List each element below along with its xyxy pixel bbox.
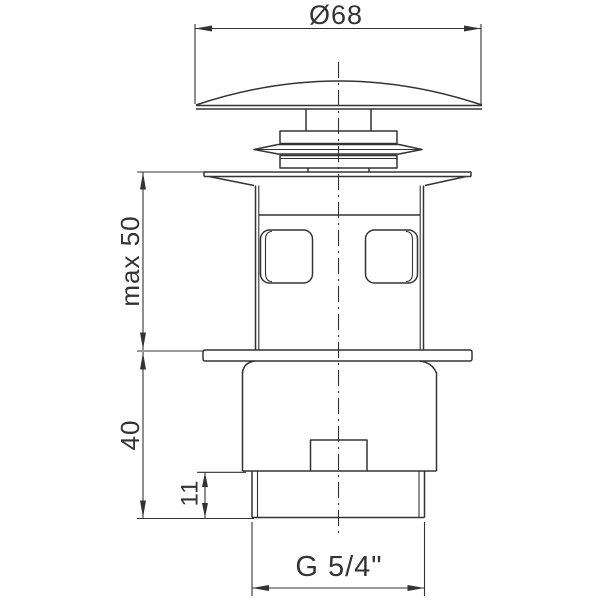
cutout-left-outline (261, 230, 313, 283)
arrow-down-icon (140, 501, 146, 518)
top-flange-cone-left (209, 177, 254, 186)
cutout-right-inner-edge (406, 232, 413, 282)
clip-cutout-right (366, 230, 418, 283)
top-flange (204, 172, 471, 186)
lower-flange-fillet-left (243, 361, 256, 373)
lower-flange-fillet-right (420, 361, 437, 373)
lower-body (243, 372, 437, 471)
upper-body (256, 186, 424, 351)
top-flange-cone-right (425, 177, 466, 186)
technical-drawing: Ø68 max 50 40 11 G 5/4" (0, 0, 600, 600)
dim-thread-label: G 5/4" (295, 551, 382, 583)
drawing-canvas: Ø68 max 50 40 11 G 5/4" (0, 0, 600, 600)
dim-11-label: 11 (177, 480, 204, 507)
dim-diameter-label: Ø68 (309, 0, 363, 30)
arrow-up-icon (140, 173, 146, 190)
dim-max-height: max 50 (115, 172, 204, 351)
dim-diameter: Ø68 (195, 0, 481, 104)
cutout-left-inner-edge (266, 232, 273, 282)
dim-thread-length: 11 (177, 472, 247, 518)
dim-max-label: max 50 (115, 215, 145, 306)
dim-thread-size: G 5/4" (252, 522, 425, 596)
lower-flange-outline (203, 350, 472, 361)
arrow-left-icon (195, 26, 212, 32)
cap-nut-lower (280, 156, 397, 173)
arrow-right-icon (464, 26, 481, 32)
arrow-right-icon (408, 585, 425, 591)
arrow-up-icon (140, 353, 146, 370)
lower-flange (203, 350, 472, 373)
clip-cutout-left (261, 230, 313, 283)
dim-40-label: 40 (115, 420, 145, 451)
cutout-right-outline (366, 230, 418, 283)
arrow-left-icon (252, 585, 269, 591)
arrow-down-icon (140, 333, 146, 350)
